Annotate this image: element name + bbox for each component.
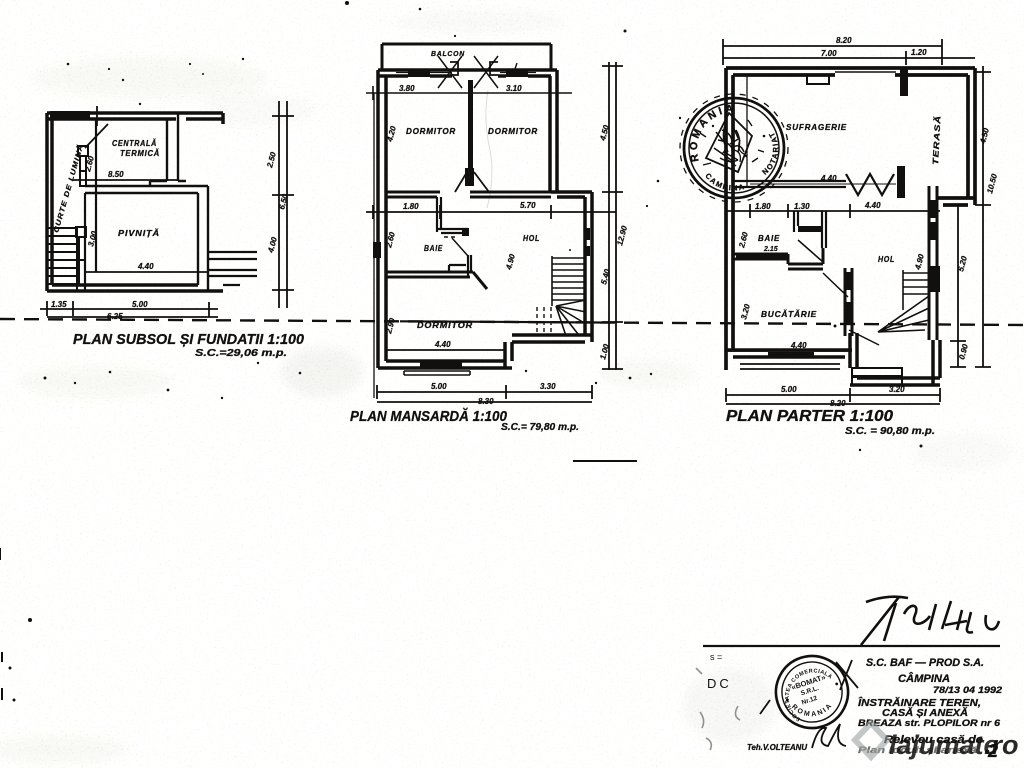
svg-text:BREAZA str. PLOPILOR nr 6: BREAZA str. PLOPILOR nr 6	[858, 718, 1001, 729]
svg-text:TERMICĂ: TERMICĂ	[120, 149, 160, 158]
svg-text:PLAN SUBSOL ȘI FUNDATII 1:100: PLAN SUBSOL ȘI FUNDATII 1:100	[73, 331, 305, 348]
svg-text:CÂMPINA: CÂMPINA	[898, 672, 950, 685]
svg-text:HOL: HOL	[523, 234, 540, 243]
svg-text:S.C. BAF — PROD S.A.: S.C. BAF — PROD S.A.	[866, 657, 984, 669]
svg-text:S.C.= 79,80 m.p.: S.C.= 79,80 m.p.	[501, 422, 579, 433]
svg-text:SUFRAGERIE: SUFRAGERIE	[786, 122, 847, 132]
svg-text:78/13 04 1992: 78/13 04 1992	[933, 685, 1002, 695]
svg-text:5.70: 5.70	[520, 201, 536, 210]
svg-text:5.00: 5.00	[132, 300, 148, 309]
svg-text:5.00: 5.00	[431, 382, 447, 391]
svg-text:1.80: 1.80	[755, 202, 771, 211]
svg-text:PIVNIȚĂ: PIVNIȚĂ	[118, 227, 160, 238]
svg-text:CENTRALĂ: CENTRALĂ	[112, 139, 157, 148]
svg-text:4.40: 4.40	[137, 262, 154, 271]
svg-text:4.40: 4.40	[864, 201, 881, 210]
svg-text:S.C.=29,06 m.p.: S.C.=29,06 m.p.	[195, 348, 287, 359]
svg-text:s =: s =	[710, 652, 722, 662]
svg-text:3.20: 3.20	[889, 385, 905, 394]
svg-text:3.30: 3.30	[540, 382, 556, 391]
svg-text:8.20: 8.20	[830, 399, 846, 408]
svg-text:BAIE: BAIE	[758, 234, 780, 243]
svg-text:2.15: 2.15	[763, 246, 778, 253]
svg-text:BAIE: BAIE	[424, 244, 443, 253]
svg-text:7.00: 7.00	[821, 49, 837, 58]
svg-text:1.20: 1.20	[911, 48, 927, 57]
svg-text:PLAN PARTER 1:100: PLAN PARTER 1:100	[726, 408, 893, 425]
svg-text:1.35: 1.35	[51, 300, 67, 309]
svg-text:4.40: 4.40	[820, 174, 837, 183]
svg-text:3.80: 3.80	[399, 84, 415, 93]
svg-text:2: 2	[987, 741, 998, 761]
svg-text:4.40: 4.40	[434, 340, 451, 349]
svg-text:DC: DC	[707, 676, 732, 691]
svg-text:8.20: 8.20	[836, 36, 852, 45]
svg-text:BALCON: BALCON	[431, 51, 465, 58]
svg-text:S.C. = 90,80 m.p.: S.C. = 90,80 m.p.	[845, 426, 935, 437]
svg-text:DORMITOR: DORMITOR	[406, 126, 456, 136]
svg-text:8.50: 8.50	[108, 170, 124, 179]
svg-text:1.30: 1.30	[794, 202, 810, 211]
svg-text:8.30: 8.30	[478, 397, 494, 406]
svg-text:PLAN MANSARDĂ 1:100: PLAN MANSARDĂ 1:100	[350, 408, 508, 425]
svg-text:Teh.V.OLTEANU: Teh.V.OLTEANU	[747, 743, 807, 752]
svg-text:5.00: 5.00	[781, 385, 797, 394]
svg-text:lajumate: lajumate	[889, 730, 999, 760]
svg-text:BUCĂTĂRIE: BUCĂTĂRIE	[761, 308, 817, 319]
svg-text:DORMITOR: DORMITOR	[488, 126, 538, 136]
svg-text:3.10: 3.10	[506, 84, 522, 93]
svg-text:1.80: 1.80	[403, 202, 419, 211]
svg-text:HOL: HOL	[878, 255, 895, 264]
